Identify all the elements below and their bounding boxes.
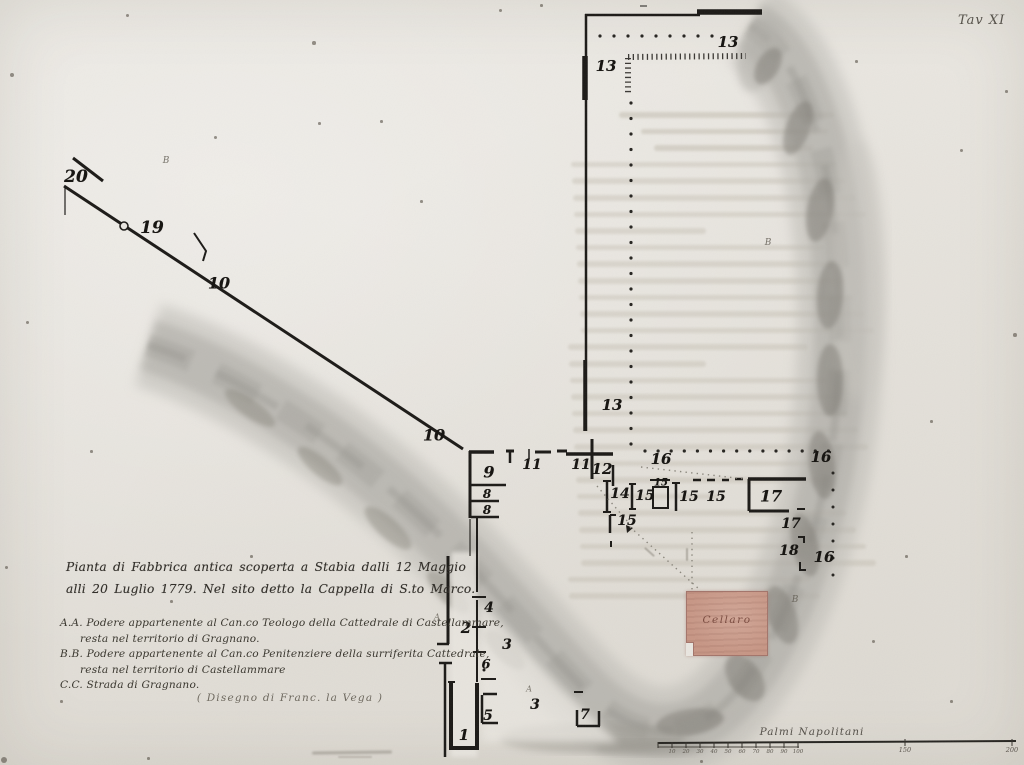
paper-speck [1013, 333, 1017, 337]
paper-speck [1, 757, 7, 763]
scanned-plate-page: Cellaro [0, 0, 1024, 765]
paper-speck [872, 640, 875, 643]
paper-speck [905, 555, 908, 558]
paper-speck [380, 120, 383, 123]
paper-speck [499, 9, 502, 12]
paper-speck [250, 555, 253, 558]
paper-speck [90, 450, 93, 453]
paper-speck [60, 700, 63, 703]
paper-speck [10, 73, 14, 77]
paper-speck [960, 149, 963, 152]
paper-speck [26, 321, 29, 324]
paper-speck [1005, 90, 1008, 93]
paper-speck [700, 760, 703, 763]
paper-speck [318, 122, 321, 125]
paper-speck [855, 60, 858, 63]
paper-speck [930, 420, 933, 423]
paper-speck [5, 566, 8, 569]
paper-speck [170, 600, 173, 603]
paper-speck [950, 700, 953, 703]
paper-speck [540, 4, 543, 7]
paper-speck [214, 136, 217, 139]
paper-speck [147, 757, 150, 760]
foxing-specks [0, 0, 1024, 765]
paper-speck [420, 200, 423, 203]
paper-speck [312, 41, 316, 45]
paper-speck [126, 14, 129, 17]
